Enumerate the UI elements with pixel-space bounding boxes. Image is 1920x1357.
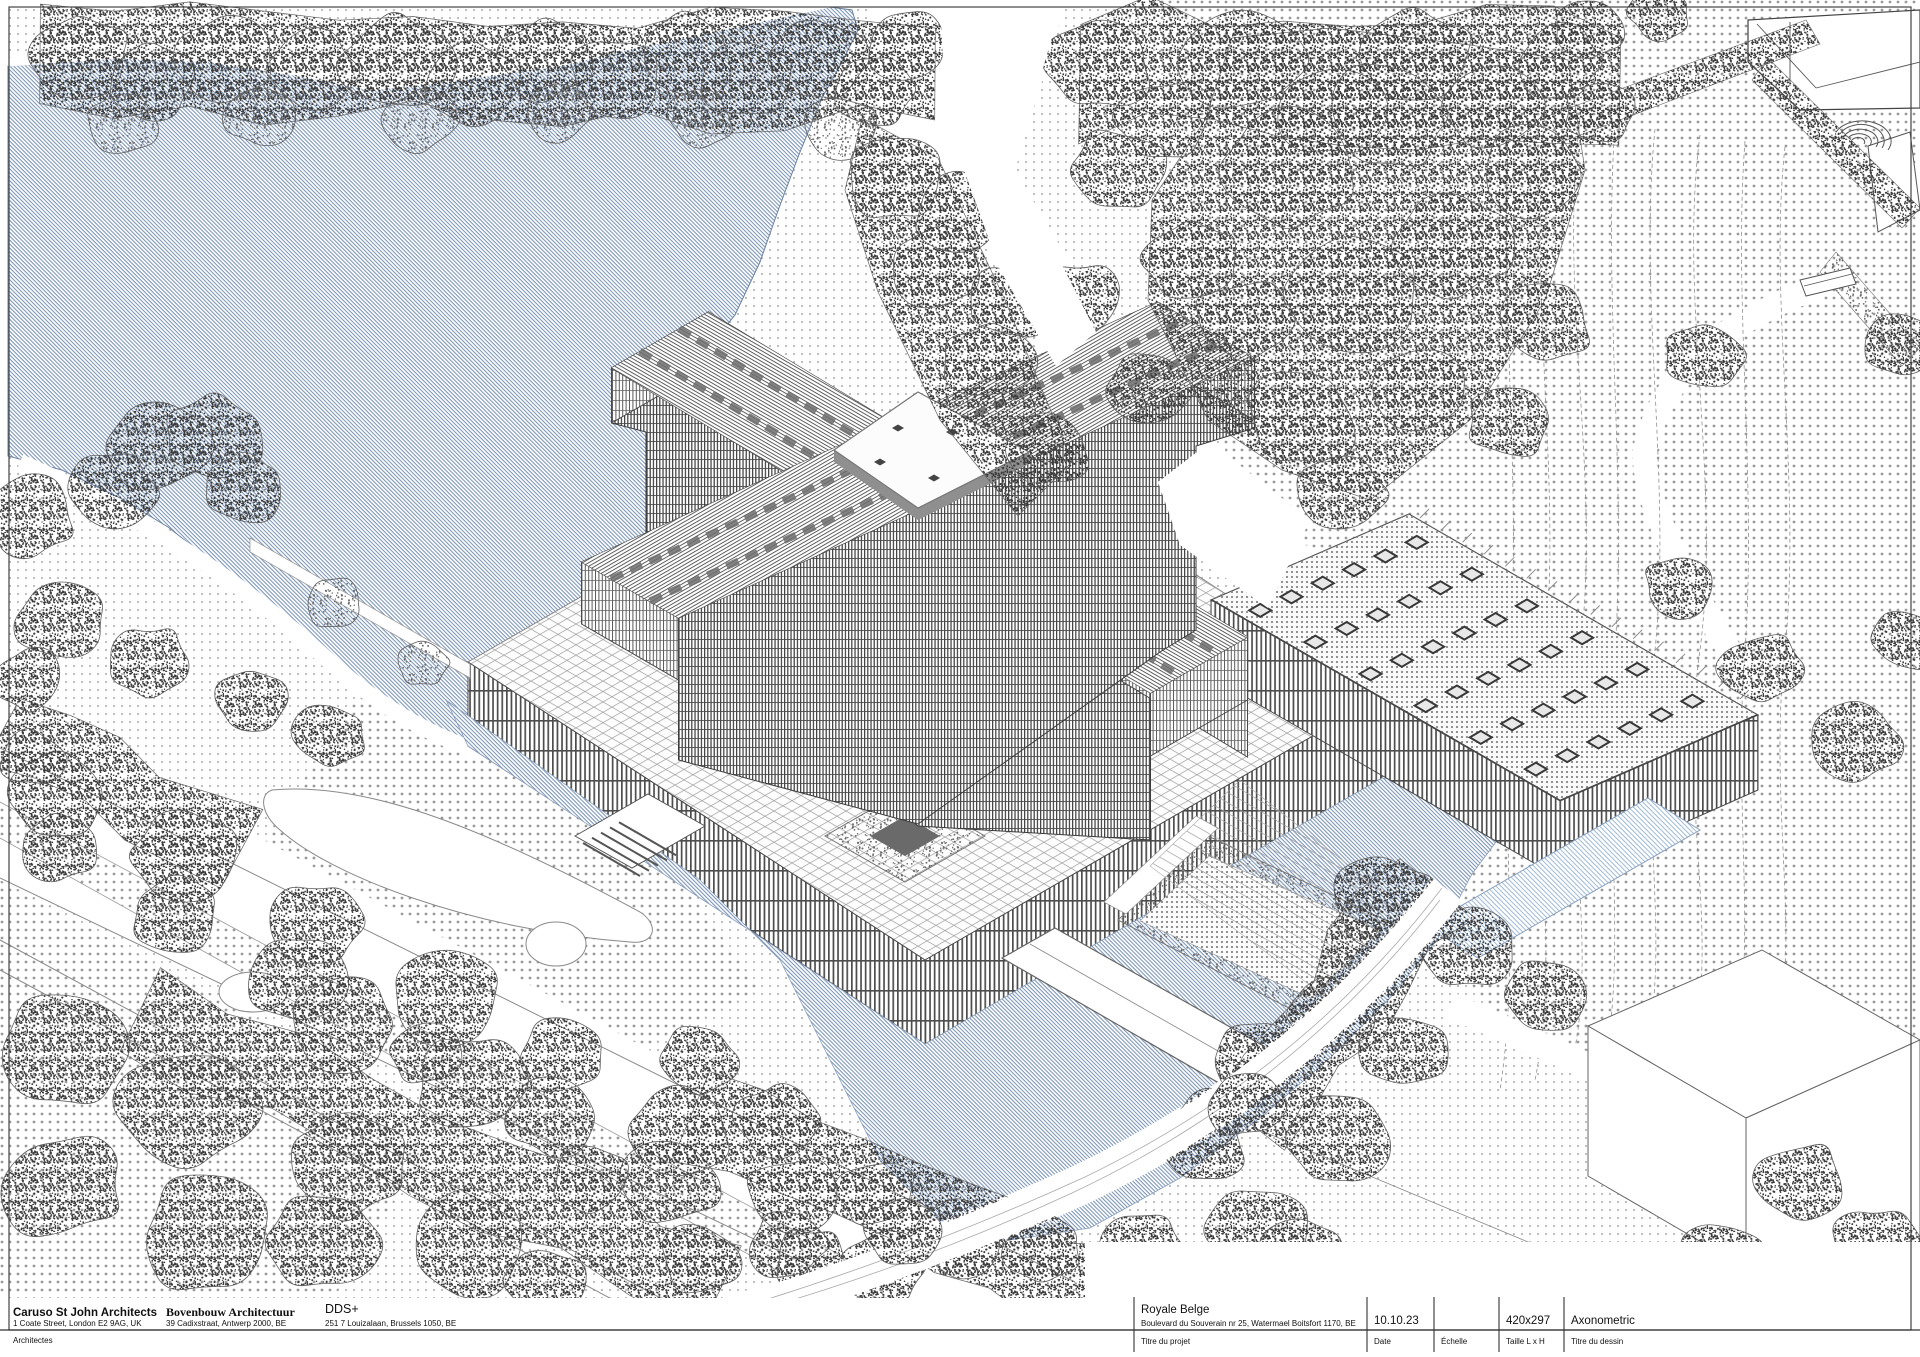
svg-text:1 Coate Street, London E2 9AG,: 1 Coate Street, London E2 9AG, UK — [13, 1319, 142, 1328]
svg-text:251 7 Louizalaan, Brussels 105: 251 7 Louizalaan, Brussels 1050, BE — [325, 1319, 456, 1328]
svg-text:Taille L x H: Taille L x H — [1506, 1337, 1545, 1346]
svg-text:Royale Belge: Royale Belge — [1141, 1304, 1209, 1316]
svg-text:10.10.23: 10.10.23 — [1374, 1315, 1419, 1327]
svg-text:420x297: 420x297 — [1506, 1315, 1550, 1327]
svg-text:Échelle: Échelle — [1441, 1337, 1468, 1346]
svg-text:Architectes: Architectes — [13, 1336, 53, 1345]
svg-text:39 Cadixstraat, Antwerp 2000,: 39 Cadixstraat, Antwerp 2000, BE — [166, 1319, 286, 1328]
svg-text:Date: Date — [1374, 1337, 1391, 1346]
svg-text:Axonometric: Axonometric — [1571, 1315, 1635, 1327]
svg-text:Titre du dessin: Titre du dessin — [1571, 1337, 1623, 1346]
svg-text:DDS+: DDS+ — [325, 1302, 359, 1316]
svg-text:Boulevard du Souverain nr 25,: Boulevard du Souverain nr 25, Watermael … — [1141, 1319, 1356, 1328]
svg-text:Titre du projet: Titre du projet — [1141, 1337, 1191, 1346]
svg-text:Bovenbouw Architectuur: Bovenbouw Architectuur — [166, 1305, 295, 1319]
svg-text:Caruso St John Architects: Caruso St John Architects — [13, 1307, 157, 1319]
